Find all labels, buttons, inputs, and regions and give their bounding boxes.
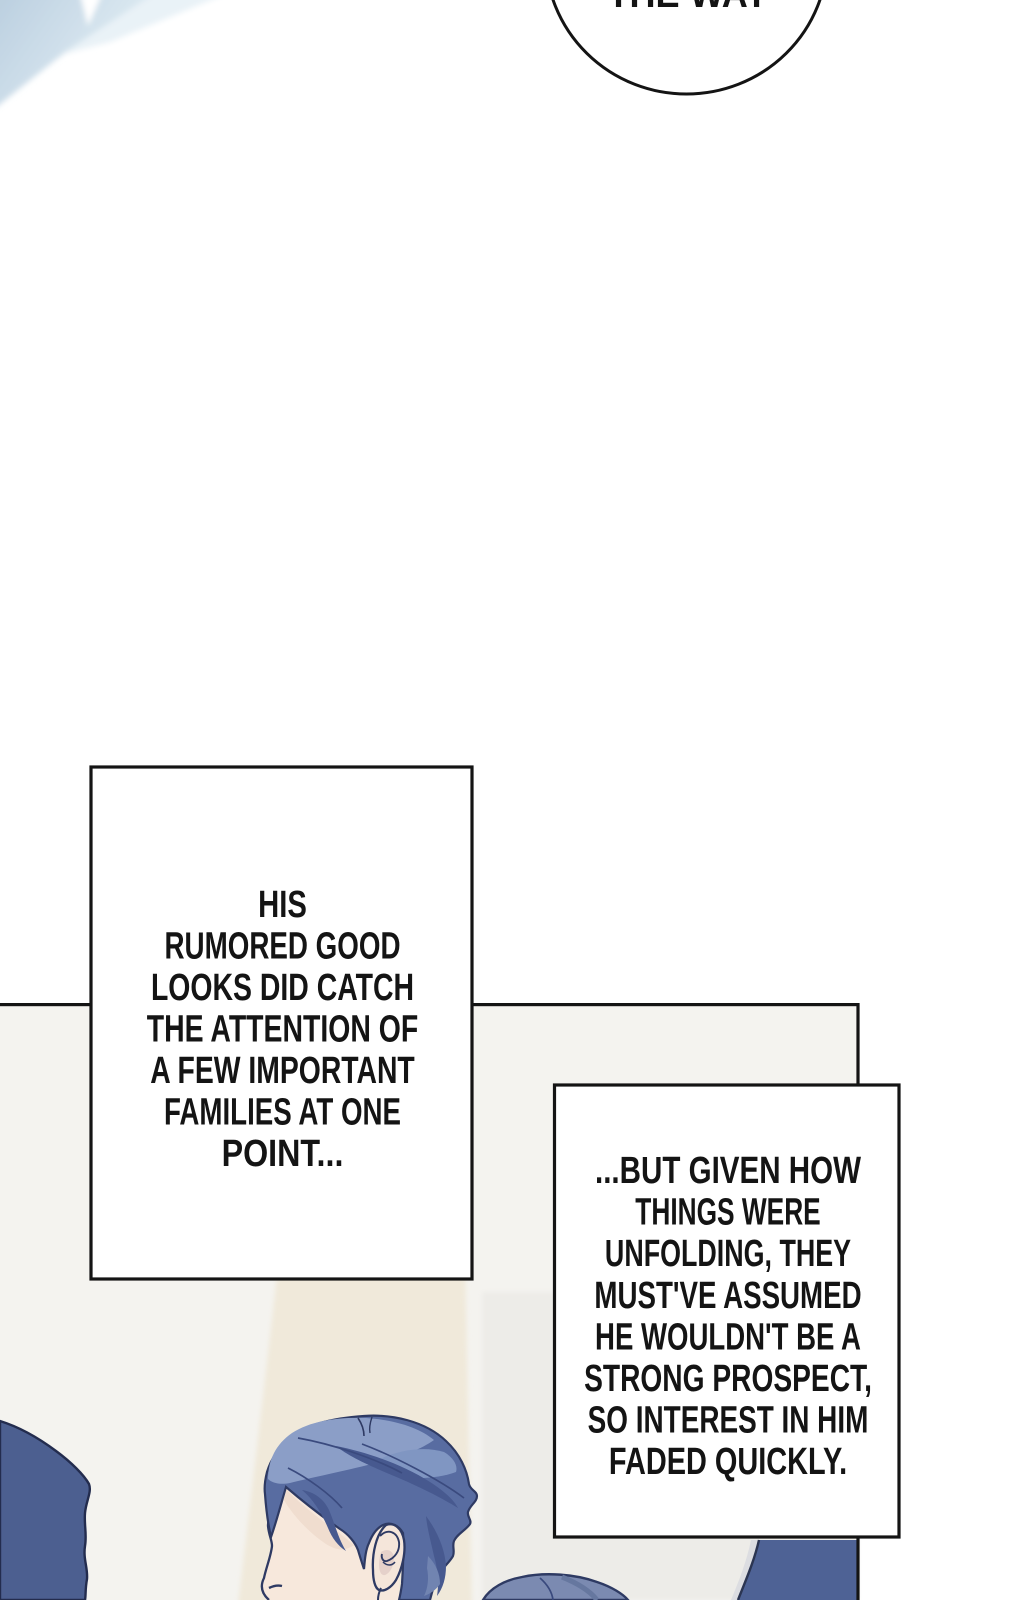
svg-text:UNFOLDING, THEY: UNFOLDING, THEY xyxy=(605,1232,851,1275)
svg-text:POINT...: POINT... xyxy=(222,1133,344,1175)
svg-text:FAMILIES AT ONE: FAMILIES AT ONE xyxy=(164,1091,401,1133)
svg-text:MUST'VE ASSUMED: MUST'VE ASSUMED xyxy=(594,1275,861,1317)
svg-text:RUMORED GOOD: RUMORED GOOD xyxy=(165,925,401,967)
svg-text:HE WOULDN'T BE A: HE WOULDN'T BE A xyxy=(595,1316,861,1358)
svg-text:THE WAY: THE WAY xyxy=(607,0,768,15)
svg-text:THE ATTENTION OF: THE ATTENTION OF xyxy=(147,1009,419,1051)
svg-text:...BUT GIVEN HOW: ...BUT GIVEN HOW xyxy=(595,1150,862,1192)
svg-text:FADED QUICKLY.: FADED QUICKLY. xyxy=(609,1440,847,1483)
svg-text:SO INTEREST IN HIM: SO INTEREST IN HIM xyxy=(588,1400,869,1442)
svg-text:STRONG PROSPECT,: STRONG PROSPECT, xyxy=(584,1358,872,1400)
svg-text:HIS: HIS xyxy=(258,883,307,926)
svg-text:LOOKS DID CATCH: LOOKS DID CATCH xyxy=(151,967,414,1009)
svg-text:A FEW IMPORTANT: A FEW IMPORTANT xyxy=(150,1050,415,1092)
svg-text:THINGS WERE: THINGS WERE xyxy=(635,1190,820,1233)
